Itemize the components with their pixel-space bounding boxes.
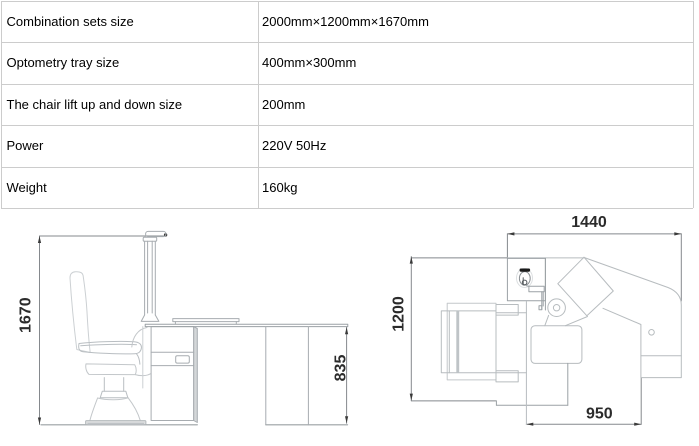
svg-text:1670: 1670 xyxy=(18,297,35,333)
svg-text:1200: 1200 xyxy=(391,296,408,332)
svg-text:950: 950 xyxy=(586,405,613,422)
svg-text:835: 835 xyxy=(333,355,350,382)
svg-text:1440: 1440 xyxy=(571,214,607,231)
